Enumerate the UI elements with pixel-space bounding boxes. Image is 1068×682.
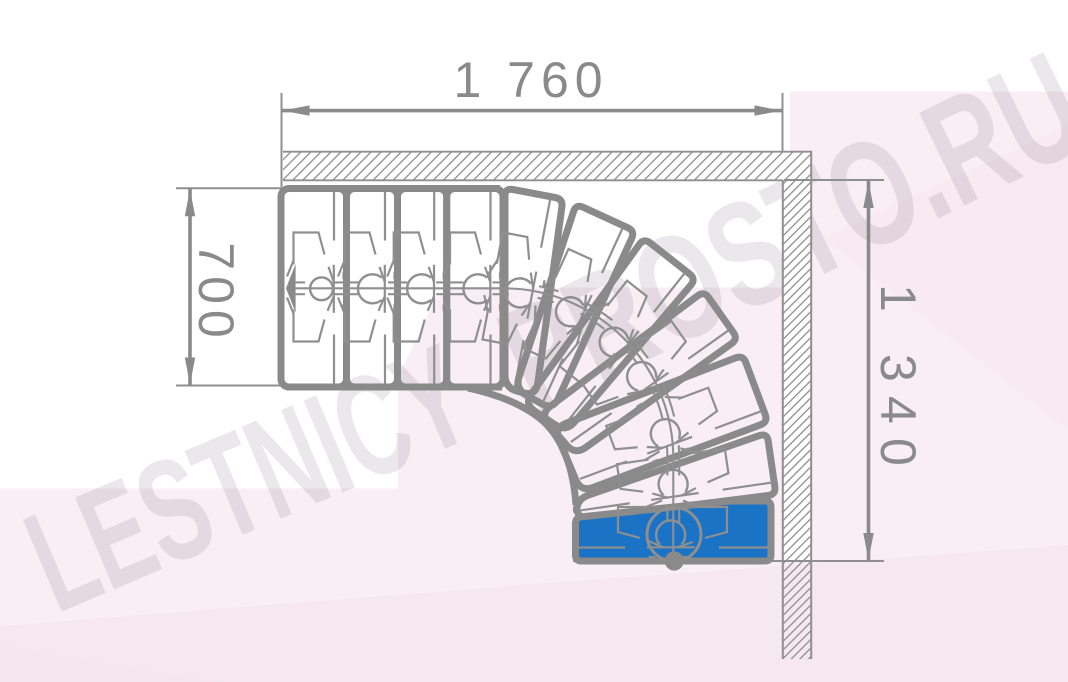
svg-text:700: 700 bbox=[188, 242, 244, 343]
svg-text:1 760: 1 760 bbox=[453, 52, 608, 108]
svg-text:1 340: 1 340 bbox=[870, 284, 926, 480]
